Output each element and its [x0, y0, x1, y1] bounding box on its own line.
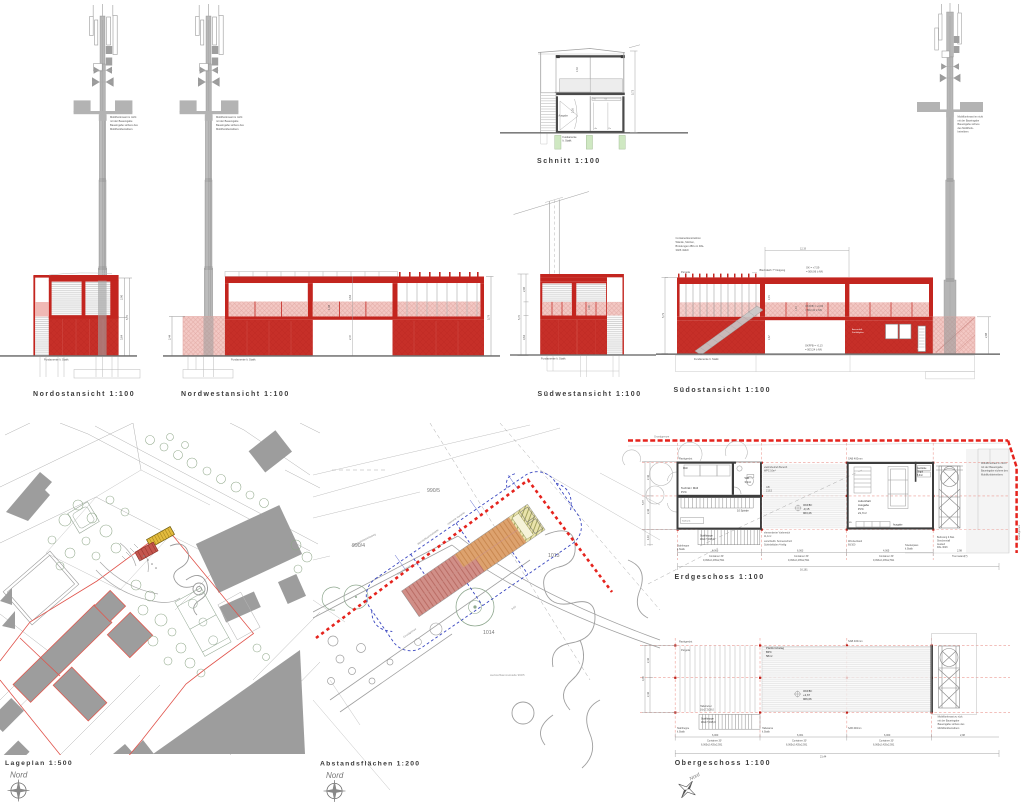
svg-text:Schiebeläden 4-teilig: Schiebeläden 4-teilig	[764, 543, 787, 546]
svg-text:1014: 1014	[483, 630, 495, 636]
svg-text:= 506,96 ü NN: = 506,96 ü NN	[806, 270, 823, 274]
svg-text:9,093x2,435x2,591: 9,093x2,435x2,591	[788, 559, 810, 562]
svg-text:Fundamente lt. Statik: Fundamente lt. Statik	[231, 358, 256, 362]
svg-text:Sitzbank: Sitzbank	[682, 520, 691, 523]
svg-text:Mobilfunkbetreibers: Mobilfunkbetreibers	[981, 473, 1004, 476]
svg-text:2,44: 2,44	[647, 509, 650, 514]
svg-text:990/5: 990/5	[427, 488, 440, 494]
svg-text:Fundamente: Fundamente	[563, 136, 578, 139]
svg-text:SAB 400mm: SAB 400mm	[848, 639, 863, 643]
svg-text:Müll: Müll	[683, 467, 688, 470]
svg-text:= 502,40 ü NN: = 502,40 ü NN	[805, 308, 822, 312]
svg-text:2,98: 2,98	[957, 549, 962, 552]
svg-text:Rankgerüst: Rankgerüst	[679, 640, 693, 644]
svg-text:Getränke: Getränke	[917, 467, 927, 470]
svg-text:Mobilfunkmast im nicht: Mobilfunkmast im nicht	[110, 115, 137, 119]
svg-text:6,065x2,435x2,591: 6,065x2,435x2,591	[873, 744, 895, 747]
svg-text:Erdgeschoss 1:100: Erdgeschoss 1:100	[675, 574, 765, 581]
svg-text:Blechdach 7° Neigung: Blechdach 7° Neigung	[760, 268, 786, 272]
svg-text:10 Spinde: 10 Spinde	[737, 509, 749, 513]
svg-text:16x17,5/28,0: 16x17,5/28,0	[701, 721, 716, 724]
svg-text:58m²: 58m²	[766, 654, 772, 658]
svg-text:16x17,5/28,0: 16x17,5/28,0	[700, 538, 715, 541]
svg-text:lt.Statik: lt.Statik	[905, 547, 914, 550]
svg-text:60/100: 60/100	[848, 543, 856, 546]
svg-text:Container 30': Container 30'	[879, 740, 894, 743]
svg-text:8,0m²: 8,0m²	[681, 494, 688, 498]
svg-text:Grundgrenze: Grundgrenze	[654, 435, 670, 439]
svg-text:Baueingabe sichere: Baueingabe sichere	[958, 123, 981, 126]
svg-text:lt.Statik: lt.Statik	[677, 730, 686, 733]
svg-text:mit der Baueingabe: mit der Baueingabe	[958, 119, 980, 122]
svg-text:Au: Au	[595, 127, 597, 130]
svg-text:3,64: 3,64	[120, 334, 124, 340]
svg-text:21,44: 21,44	[820, 755, 827, 758]
svg-text:16,161: 16,161	[800, 568, 808, 571]
svg-text:Trennwand(?): Trennwand(?)	[952, 555, 968, 558]
svg-text:16x17,5/28,0: 16x17,5/28,0	[700, 708, 714, 711]
svg-text:Wände, Stützen,: Wände, Stützen,	[676, 240, 695, 244]
svg-text:5,79: 5,79	[487, 314, 491, 320]
svg-text:Mobilfunkmast im nicht: Mobilfunkmast im nicht	[958, 116, 984, 119]
svg-text:5,70: 5,70	[125, 314, 129, 320]
svg-text:= 503,24 ü NN: = 503,24 ü NN	[805, 348, 822, 352]
svg-text:2,67: 2,67	[768, 335, 771, 340]
svg-text:Nordostansicht 1:100: Nordostansicht 1:100	[33, 391, 135, 398]
svg-text:WPC 10m²: WPC 10m²	[764, 469, 776, 472]
svg-text:3,9m²: 3,9m²	[745, 480, 752, 484]
svg-text:Aussenluft: Aussenluft	[852, 328, 863, 331]
svg-text:Obergeschoss 1:100: Obergeschoss 1:100	[675, 760, 771, 767]
svg-text:1,40: 1,40	[795, 306, 798, 311]
svg-text:2,98: 2,98	[960, 734, 965, 737]
svg-text:2,30: 2,30	[576, 67, 579, 72]
svg-text:Container 30': Container 30'	[792, 740, 807, 743]
svg-text:RAL 3026: RAL 3026	[937, 546, 948, 549]
svg-text:5,3m²: 5,3m²	[917, 474, 923, 477]
svg-text:betreibers: betreibers	[958, 131, 970, 134]
svg-text:6,060: 6,060	[884, 734, 891, 737]
svg-text:11,1m²: 11,1m²	[764, 535, 771, 538]
svg-text:Mobilfunkbetreibers: Mobilfunkbetreibers	[110, 127, 133, 131]
svg-text:3026 rötlich: 3026 rötlich	[676, 248, 690, 252]
svg-text:Nord: Nord	[10, 771, 28, 780]
svg-text:Mobilfunkmast im nicht: Mobilfunkmast im nicht	[981, 462, 1007, 465]
svg-text:mit der Baueingabe: mit der Baueingabe	[216, 119, 239, 123]
svg-text:9,093x2,435x2,591: 9,093x2,435x2,591	[703, 559, 725, 562]
svg-text:Baueingabe sichere des: Baueingabe sichere des	[981, 470, 1009, 473]
svg-text:mit der Baueingabe: mit der Baueingabe	[110, 119, 133, 123]
svg-text:Nord: Nord	[326, 771, 344, 780]
svg-text:Lageplan 1:500: Lageplan 1:500	[5, 760, 73, 767]
svg-text:Schnitt 1:100: Schnitt 1:100	[537, 158, 601, 165]
svg-text:5,73: 5,73	[631, 89, 635, 95]
svg-text:2,44: 2,44	[647, 692, 650, 697]
svg-text:2,96: 2,96	[522, 286, 526, 292]
svg-text:des Mobilfunk-: des Mobilfunk-	[958, 127, 974, 130]
svg-text:lt.Statik: lt.Statik	[677, 548, 686, 551]
svg-text:lt.Statik: lt.Statik	[762, 730, 771, 733]
svg-text:lt. Statik: lt. Statik	[563, 140, 573, 143]
svg-text:WC: WC	[745, 476, 750, 480]
svg-text:5,97: 5,97	[642, 500, 645, 505]
svg-text:Fundamente lt. Statik: Fundamente lt. Statik	[541, 356, 566, 360]
svg-text:6,065x2,435x2,591: 6,065x2,435x2,591	[701, 744, 723, 747]
svg-text:5,79: 5,79	[661, 312, 665, 318]
svg-text:SAB 400mm: SAB 400mm	[848, 727, 861, 730]
svg-text:Pergola: Pergola	[681, 270, 690, 274]
svg-text:wertstoffsammelstelle 990/5: wertstoffsammelstelle 990/5	[490, 673, 525, 677]
svg-text:1,08: 1,08	[588, 305, 591, 310]
svg-text:Container 30': Container 30'	[879, 555, 894, 558]
svg-text:9,093x2,435x2,591: 9,093x2,435x2,591	[873, 559, 895, 562]
svg-text:21,7m²: 21,7m²	[858, 511, 867, 515]
svg-text:1013: 1013	[548, 553, 560, 559]
svg-text:Mobilfunkbetreibers: Mobilfunkbetreibers	[938, 727, 961, 730]
svg-text:Container 30': Container 30'	[707, 740, 722, 743]
svg-text:Baueingabe sichere des: Baueingabe sichere des	[216, 123, 245, 127]
svg-text:Regal: Regal	[917, 471, 923, 473]
svg-text:2,44: 2,44	[647, 658, 650, 663]
svg-text:966,06: 966,06	[803, 697, 812, 701]
svg-text:OKFFB = -0,13: OKFFB = -0,13	[805, 344, 823, 348]
svg-text:1,08: 1,08	[327, 304, 331, 310]
svg-text:4,90: 4,90	[642, 676, 645, 681]
svg-text:Abstandsflächen 1:200: Abstandsflächen 1:200	[320, 761, 420, 768]
svg-text:mit der Baueingabe: mit der Baueingabe	[938, 719, 960, 722]
svg-text:2,47: 2,47	[348, 334, 352, 340]
svg-text:1,10: 1,10	[647, 535, 650, 540]
svg-text:6,065x2,435x2,591: 6,065x2,435x2,591	[786, 744, 808, 747]
svg-text:6,065: 6,065	[712, 549, 719, 552]
svg-text:Rankgerüst: Rankgerüst	[679, 457, 693, 461]
svg-text:Südwestansicht 1:100: Südwestansicht 1:100	[538, 391, 642, 398]
svg-text:213,5: 213,5	[766, 489, 773, 492]
svg-text:REGALBL: REGALBL	[918, 348, 926, 351]
svg-text:Mobilfunkmast zu rück: Mobilfunkmast zu rück	[938, 716, 964, 719]
svg-text:Baueingabe sichere des: Baueingabe sichere des	[938, 723, 966, 726]
svg-text:Containerkonstruktion: Containerkonstruktion	[676, 236, 702, 240]
svg-text:2,44: 2,44	[168, 334, 172, 340]
svg-text:Nordwestansicht 1:100: Nordwestansicht 1:100	[181, 391, 290, 398]
svg-text:Brüstungen dBzu in RAL: Brüstungen dBzu in RAL	[676, 244, 705, 248]
svg-text:2,88: 2,88	[984, 332, 988, 338]
svg-text:2,44: 2,44	[647, 475, 650, 480]
svg-text:Ausgabe: Ausgabe	[559, 115, 569, 118]
svg-text:3,64: 3,64	[522, 334, 526, 340]
svg-text:4,065: 4,065	[883, 549, 890, 552]
svg-text:6,061: 6,061	[797, 734, 804, 737]
svg-text:Fundamente lt. Statik: Fundamente lt. Statik	[44, 358, 69, 362]
svg-text:12,19: 12,19	[800, 247, 807, 250]
svg-text:6,063: 6,063	[797, 549, 804, 552]
svg-text:mit der Baueingabe: mit der Baueingabe	[981, 466, 1003, 469]
svg-text:Pergola: Pergola	[681, 648, 690, 652]
svg-text:SAB 400mm: SAB 400mm	[848, 457, 863, 461]
svg-text:Container 30': Container 30'	[794, 555, 809, 558]
svg-text:Mobilfunkmast im nicht: Mobilfunkmast im nicht	[216, 115, 243, 119]
svg-text:Fortluftgitter: Fortluftgitter	[852, 331, 864, 334]
svg-text:Fundamente lt. Statik: Fundamente lt. Statik	[694, 357, 719, 361]
svg-text:2,96: 2,96	[120, 294, 124, 300]
svg-text:2,45: 2,45	[768, 295, 771, 300]
svg-text:OKFFB = +3,03: OKFFB = +3,03	[805, 304, 824, 308]
svg-text:5,70: 5,70	[517, 314, 521, 320]
svg-text:3,64: 3,64	[348, 294, 352, 300]
svg-text:Ausgabe: Ausgabe	[893, 524, 903, 527]
svg-text:963,26: 963,26	[803, 511, 812, 515]
svg-text:OK = +7,59: OK = +7,59	[806, 266, 820, 270]
svg-text:Südostansicht 1:100: Südostansicht 1:100	[674, 387, 772, 394]
svg-text:6,060: 6,060	[712, 734, 719, 737]
svg-text:Ru: Ru	[609, 128, 612, 130]
svg-text:Baueingabe sichere des: Baueingabe sichere des	[110, 123, 139, 127]
svg-text:2,26: 2,26	[572, 108, 575, 113]
svg-text:Mobilfunkbetreibers: Mobilfunkbetreibers	[216, 127, 239, 131]
svg-text:Grundgrenze: Grundgrenze	[1017, 524, 1021, 540]
svg-text:Container 30': Container 30'	[709, 555, 724, 558]
